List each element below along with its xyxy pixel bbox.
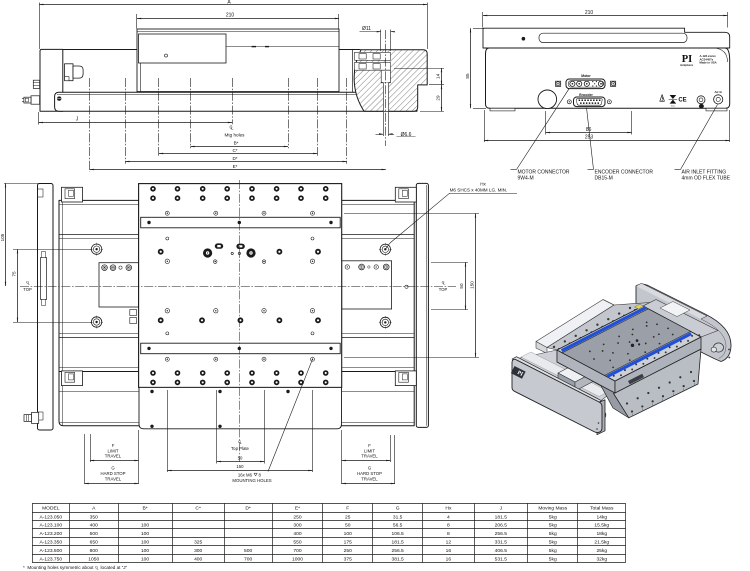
svg-text:700: 700 <box>293 548 301 554</box>
svg-text:331.5: 331.5 <box>495 540 508 546</box>
svg-text:400: 400 <box>194 556 202 562</box>
svg-text:21.5kg: 21.5kg <box>594 540 609 546</box>
svg-text:106.5: 106.5 <box>392 531 405 537</box>
svg-text:D*: D* <box>232 156 237 161</box>
svg-text:16x M6: 16x M6 <box>238 473 253 478</box>
svg-text:G: G <box>396 506 400 512</box>
svg-text:A-123.750: A-123.750 <box>40 556 63 562</box>
svg-text:8: 8 <box>447 531 450 537</box>
svg-text:325: 325 <box>194 540 202 546</box>
svg-text:5kg: 5kg <box>549 548 557 554</box>
svg-text:15.5kg: 15.5kg <box>594 523 609 529</box>
svg-text:Hx: Hx <box>480 182 486 187</box>
svg-text:18kg: 18kg <box>596 531 607 537</box>
svg-text:located at “J”: located at “J” <box>101 565 128 570</box>
svg-text:85: 85 <box>465 73 470 79</box>
svg-text:C*: C* <box>232 148 237 153</box>
svg-text:5kg: 5kg <box>549 540 557 546</box>
svg-text:Encoder: Encoder <box>579 93 593 97</box>
svg-text:TRAVEL: TRAVEL <box>105 476 122 481</box>
svg-text:100: 100 <box>141 548 149 554</box>
svg-text:F: F <box>368 443 371 448</box>
svg-text:L: L <box>97 566 99 570</box>
svg-text:50: 50 <box>238 455 243 460</box>
svg-text:210: 210 <box>585 10 594 16</box>
svg-text:100: 100 <box>141 540 149 546</box>
svg-text:M6 SHCS x 40MM LG. MIN.: M6 SHCS x 40MM LG. MIN. <box>450 188 508 193</box>
svg-text:256.5: 256.5 <box>392 548 405 554</box>
svg-text:Made in USA: Made in USA <box>700 61 717 65</box>
svg-text:800: 800 <box>90 548 98 554</box>
svg-text:MOUNTING HOLES: MOUNTING HOLES <box>232 478 271 483</box>
svg-text:5kg: 5kg <box>549 531 557 537</box>
svg-text:A-123.050: A-123.050 <box>40 514 63 520</box>
svg-text:210: 210 <box>226 12 235 18</box>
svg-text:253: 253 <box>585 134 594 140</box>
svg-text:175: 175 <box>344 540 352 546</box>
svg-text:4: 4 <box>447 514 450 520</box>
svg-text:25kg: 25kg <box>596 548 607 554</box>
svg-text:LIMIT: LIMIT <box>364 448 375 453</box>
svg-text:TRAVEL: TRAVEL <box>361 476 378 481</box>
svg-text:16: 16 <box>446 548 452 554</box>
svg-text:E*: E* <box>295 506 300 512</box>
svg-text:25: 25 <box>345 514 351 520</box>
svg-text:50: 50 <box>459 283 464 289</box>
svg-text:100: 100 <box>141 523 149 529</box>
svg-text:700: 700 <box>244 556 252 562</box>
svg-text:29: 29 <box>435 95 440 101</box>
svg-text:500: 500 <box>244 548 252 554</box>
svg-text:256.5: 256.5 <box>495 531 508 537</box>
svg-text:B*: B* <box>142 506 147 512</box>
svg-text:381.5: 381.5 <box>392 556 405 562</box>
svg-text:75: 75 <box>12 271 17 277</box>
svg-text:* Mounting holes symmetric ab: * Mounting holes symmetric about <box>23 565 94 570</box>
svg-text:406.5: 406.5 <box>495 548 508 554</box>
svg-text:250: 250 <box>344 548 352 554</box>
svg-text:5kg: 5kg <box>549 556 557 562</box>
svg-text:A-123.100: A-123.100 <box>40 523 63 529</box>
svg-text:16: 16 <box>446 556 452 562</box>
svg-text:12: 12 <box>446 540 452 546</box>
svg-text:Ø11: Ø11 <box>362 26 371 32</box>
svg-text:500: 500 <box>90 531 98 537</box>
svg-text:14: 14 <box>435 73 440 79</box>
svg-text:14kg: 14kg <box>596 514 607 520</box>
svg-text:8: 8 <box>447 523 450 529</box>
svg-text:31.5: 31.5 <box>393 514 403 520</box>
svg-text:max: max <box>671 106 675 108</box>
svg-text:DB15-M: DB15-M <box>595 175 613 181</box>
svg-text:A-123.350: A-123.350 <box>40 540 63 546</box>
svg-text:B*: B* <box>234 140 239 145</box>
svg-text:5kg: 5kg <box>549 523 557 529</box>
svg-text:TRAVEL: TRAVEL <box>105 454 122 459</box>
svg-text:181.5: 181.5 <box>495 514 508 520</box>
svg-text:100: 100 <box>141 556 149 562</box>
svg-text:550: 550 <box>293 540 301 546</box>
svg-text:Hx: Hx <box>445 506 452 512</box>
svg-text:206.5: 206.5 <box>495 523 508 529</box>
svg-text:150: 150 <box>469 281 474 289</box>
svg-text:Ø6.6: Ø6.6 <box>401 132 412 138</box>
svg-text:1050: 1050 <box>88 556 99 562</box>
svg-text:HARD STOP: HARD STOP <box>357 471 382 476</box>
svg-text:4mm OD FLEX TUBE: 4mm OD FLEX TUBE <box>682 175 731 181</box>
svg-text:MODEL: MODEL <box>42 506 60 512</box>
svg-text:D*: D* <box>245 506 251 512</box>
svg-text:50: 50 <box>345 523 351 529</box>
svg-text:531.5: 531.5 <box>495 556 508 562</box>
svg-text:5kg: 5kg <box>549 514 557 520</box>
svg-text:mmtplxxxx: mmtplxxxx <box>680 64 694 67</box>
svg-text:105: 105 <box>0 233 5 241</box>
svg-text:A-123.200: A-123.200 <box>40 531 63 537</box>
svg-text:400: 400 <box>293 531 301 537</box>
svg-text:Moving Mass: Moving Mass <box>538 506 567 512</box>
svg-text:TOP: TOP <box>23 287 32 292</box>
svg-text:400: 400 <box>90 523 98 529</box>
svg-text:300: 300 <box>194 548 202 554</box>
svg-text:TRAVEL: TRAVEL <box>361 454 378 459</box>
svg-text:650: 650 <box>90 540 98 546</box>
svg-text:LIMIT: LIMIT <box>108 448 119 453</box>
svg-text:Top Plate: Top Plate <box>231 446 250 451</box>
svg-text:F: F <box>346 506 349 512</box>
svg-text:375: 375 <box>344 556 352 562</box>
svg-text:9W4-M: 9W4-M <box>518 175 534 181</box>
svg-text:Motor: Motor <box>581 74 591 78</box>
svg-text:E*: E* <box>233 164 238 169</box>
svg-text:350: 350 <box>90 514 98 520</box>
svg-text:HARD STOP: HARD STOP <box>101 471 126 476</box>
svg-text:56.5: 56.5 <box>393 523 403 529</box>
svg-text:Mtg holes: Mtg holes <box>225 133 246 138</box>
svg-text:181.5: 181.5 <box>392 540 405 546</box>
svg-text:TOP: TOP <box>439 287 448 292</box>
svg-text:100: 100 <box>141 531 149 537</box>
svg-text:C*: C* <box>195 506 201 512</box>
svg-text:32kg: 32kg <box>596 556 607 562</box>
svg-text:CE: CE <box>678 97 686 103</box>
svg-text:Air In: Air In <box>714 90 722 94</box>
svg-text:1000: 1000 <box>292 556 303 562</box>
svg-text:250: 250 <box>293 514 301 520</box>
svg-text:300: 300 <box>293 523 301 529</box>
svg-text:150: 150 <box>236 464 244 469</box>
svg-text:A-123.500: A-123.500 <box>40 548 63 554</box>
svg-text:Total Mass: Total Mass <box>590 506 614 512</box>
svg-text:100: 100 <box>344 531 352 537</box>
svg-text:F: F <box>112 443 115 448</box>
